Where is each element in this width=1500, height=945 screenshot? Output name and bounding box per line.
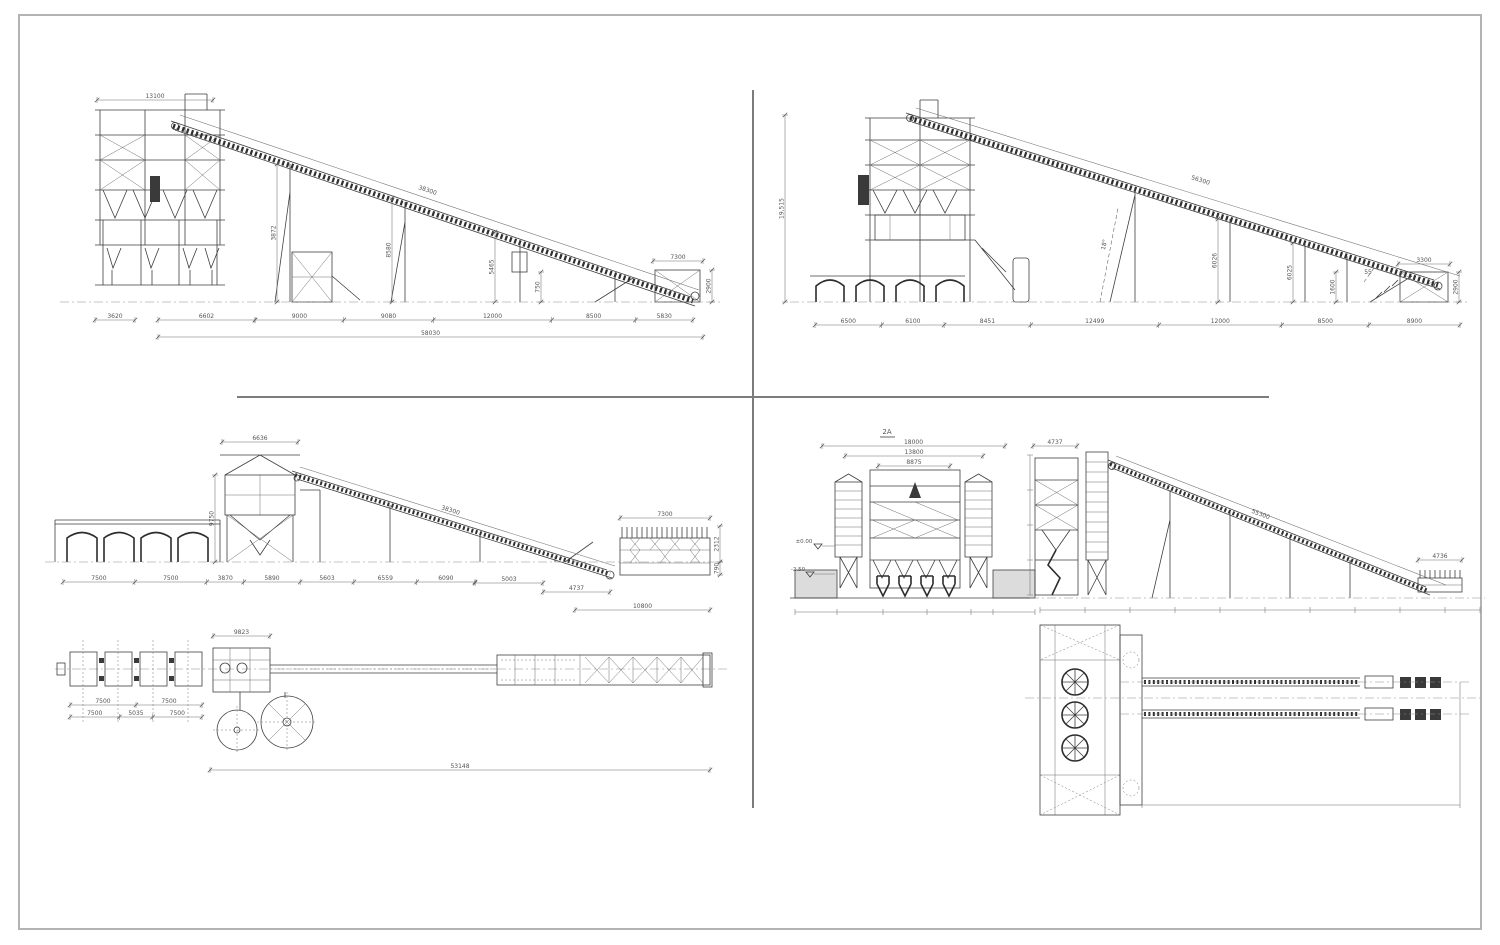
plan-view (55, 640, 730, 754)
dim-label: 12499 (1085, 318, 1104, 325)
dim-tail-1: 5003 (473, 576, 545, 586)
dim-label: 6636 (252, 435, 267, 442)
dim-label: 5035 (128, 710, 143, 717)
dim-label: 7500 (161, 698, 176, 705)
dim-row-bins-2: 750050357500 (68, 710, 204, 720)
truck-bays (810, 276, 965, 302)
dim-label: 2900 (706, 278, 713, 293)
dim-label: 7500 (95, 698, 110, 705)
dim-front-mid: 13800 (843, 449, 985, 459)
dim-label: 2900 (1453, 279, 1460, 294)
dim-tower-height: 9750 (209, 473, 219, 564)
dim-label: 9080 (381, 313, 396, 320)
inclined-conveyor-side (1108, 460, 1430, 598)
svg-text:-2.50: -2.50 (791, 567, 806, 573)
dim-label: 12000 (483, 313, 502, 320)
dim-label: 6025 (1287, 265, 1294, 280)
dim-label: 4737 (569, 585, 584, 592)
dim-tail-support: 1600 (1330, 270, 1340, 304)
dim-h3: 5465 (489, 230, 499, 304)
dim-screen-h1: 2312 (714, 524, 724, 564)
dim-label: 18000 (904, 439, 923, 446)
conveyor-dim-line (916, 108, 1460, 276)
view-bottom-left: 6636 9750 38300 750075003870589056036559… (35, 420, 745, 810)
tail-machine-side (1418, 570, 1462, 592)
dim-angle: 18° (1100, 239, 1109, 251)
dim-label: 5830 (657, 313, 672, 320)
dim-screen-top: 7300 (618, 511, 712, 521)
conveyor-dim-line-side (1116, 456, 1446, 585)
dim-label: 13800 (904, 449, 923, 456)
dim-label: 6090 (438, 575, 453, 582)
dim-plan-total: 53148 (208, 763, 712, 773)
dim-label: 13100 (145, 93, 164, 100)
dim-label: 12000 (1211, 318, 1230, 325)
dim-label: 9823 (234, 629, 249, 636)
conveyor-plan-1 (1120, 676, 1470, 688)
dim-label: 5003 (501, 576, 516, 583)
conveyor-dim-line (300, 467, 615, 566)
dim-label: 4737 (1047, 439, 1062, 446)
front-bottom-ticks (795, 609, 1035, 615)
dim-label: 790 (714, 563, 721, 575)
mix-tower-front (870, 470, 960, 588)
dim-total: 58030 (156, 330, 705, 340)
elevation-mark-ground: ±0.00 (796, 539, 835, 549)
dim-row-bottom: 7500750038705890560365596090 (61, 575, 477, 585)
dim-screen-total: 10800 (573, 603, 712, 613)
dim-label: 7500 (87, 710, 102, 717)
dim-label: 7300 (657, 511, 672, 518)
dim-label: 5465 (489, 259, 496, 274)
dim-label: 3300 (1416, 257, 1431, 264)
dim-conveyor-length: 38300 (440, 504, 460, 516)
mix-tower-side (1035, 458, 1078, 595)
side-elevation: 55300 (1027, 452, 1485, 613)
dim-tower-width: 6636 (220, 435, 300, 445)
dim-front-inner: 8875 (876, 459, 952, 469)
plan-total-ticks (1142, 682, 1460, 808)
inclined-conveyor (292, 471, 614, 579)
dim-label: 6500 (841, 318, 856, 325)
dim-label: 6026 (1212, 253, 1219, 268)
dim-front-overall: 18000 (820, 439, 1007, 449)
view-top-right-elevation: 18° 19,515 56300 6026 6025 1600 55 3300 … (770, 80, 1490, 370)
dim-label: 8451 (980, 318, 995, 325)
dim-left: 3620 (93, 313, 137, 323)
drawing-sheet: 13100 38300 3872 8580 5465 750 7300 2900… (0, 0, 1500, 945)
dim-label: 19,515 (779, 198, 786, 219)
dim-support-2: 6025 (1287, 241, 1297, 304)
dim-label: 3620 (107, 313, 122, 320)
cement-silo-left (835, 474, 862, 588)
view-bottom-right: 2A (790, 420, 1490, 830)
view-label: 2A (882, 428, 891, 436)
dim-tower-width: 13100 (95, 93, 215, 103)
dim-h4: 750 (535, 270, 545, 304)
dim-label: 3872 (271, 225, 278, 240)
dim-overall-height: 19,515 (779, 113, 789, 304)
dim-label: 5603 (319, 575, 334, 582)
dim-label: 7500 (163, 575, 178, 582)
dim-label: 1600 (1330, 279, 1337, 294)
dim-label: 8900 (1407, 318, 1422, 325)
dim-label: 5890 (264, 575, 279, 582)
plan-view-br (1025, 625, 1480, 815)
dim-tail-2: 4737 (541, 585, 612, 595)
dim-label: 6602 (199, 313, 214, 320)
angle-reference-line (1100, 208, 1118, 302)
dim-tail-top: 7300 (651, 254, 705, 264)
dim-conveyor-length: 56300 (1190, 174, 1210, 186)
dim-label: 7500 (170, 710, 185, 717)
discharge-cones (877, 576, 955, 596)
dim-h1: 3872 (271, 162, 281, 304)
mixer-circles-plan (1062, 669, 1088, 761)
pier-right (993, 570, 1035, 598)
conveyor-supports (1110, 189, 1448, 302)
screen-machine (620, 527, 710, 575)
dim-label: 8580 (386, 242, 393, 257)
dim-label: 4736 (1432, 553, 1447, 560)
note-55: 55 (1364, 269, 1372, 276)
dim-offset: 6602 (156, 313, 257, 323)
conveyor-plan-2 (1120, 708, 1470, 720)
dim-row-bottom: 900090801200085005830 (253, 313, 695, 323)
inclined-conveyor (171, 121, 695, 306)
svg-text:±0.00: ±0.00 (796, 539, 813, 545)
silo-side (1086, 452, 1108, 595)
aggregate-storage (55, 520, 220, 562)
dim-label: 750 (535, 281, 542, 293)
dim-support-1: 6026 (1212, 217, 1222, 304)
dim-building-width: 9823 (211, 629, 272, 639)
batch-tower (95, 94, 225, 285)
dim-label: 10800 (633, 603, 652, 610)
dim-label: 3870 (218, 575, 233, 582)
dim-row-bottom: 650061008451124991200085008900 (813, 318, 1462, 328)
mix-tower (220, 455, 320, 562)
conveyor-dim-line (180, 115, 699, 290)
stair-tower (292, 252, 360, 302)
dim-screen-h2: 790 (714, 560, 724, 577)
dim-label: 7500 (91, 575, 106, 582)
dim-side-tail: 4736 (1416, 553, 1464, 563)
dim-label: 8875 (906, 459, 921, 466)
dim-label: 9000 (292, 313, 307, 320)
dim-label: 6559 (378, 575, 393, 582)
dim-tail-height: 2900 (706, 268, 716, 304)
dim-label: 9750 (209, 511, 216, 526)
dim-side-head: 4737 (1031, 439, 1079, 449)
dim-conveyor-length-side: 55300 (1250, 508, 1270, 521)
inclined-conveyor (906, 113, 1440, 289)
dim-conveyor-length: 38300 (417, 184, 437, 197)
view-top-left-elevation: 13100 38300 3872 8580 5465 750 7300 2900… (55, 80, 745, 370)
dim-label: 8500 (586, 313, 601, 320)
side-bottom-ticks (1040, 607, 1480, 613)
dim-label: 2312 (714, 536, 721, 551)
quadrant-divider-vertical (752, 90, 754, 808)
dim-label: 58030 (421, 330, 440, 337)
dim-label: 8500 (1318, 318, 1333, 325)
cement-silo-right (965, 474, 992, 588)
dim-label: 7300 (670, 254, 685, 261)
dim-label: 6100 (905, 318, 920, 325)
dim-label: 53148 (450, 763, 469, 770)
dim-row-bins-1: 75007500 (68, 698, 204, 708)
